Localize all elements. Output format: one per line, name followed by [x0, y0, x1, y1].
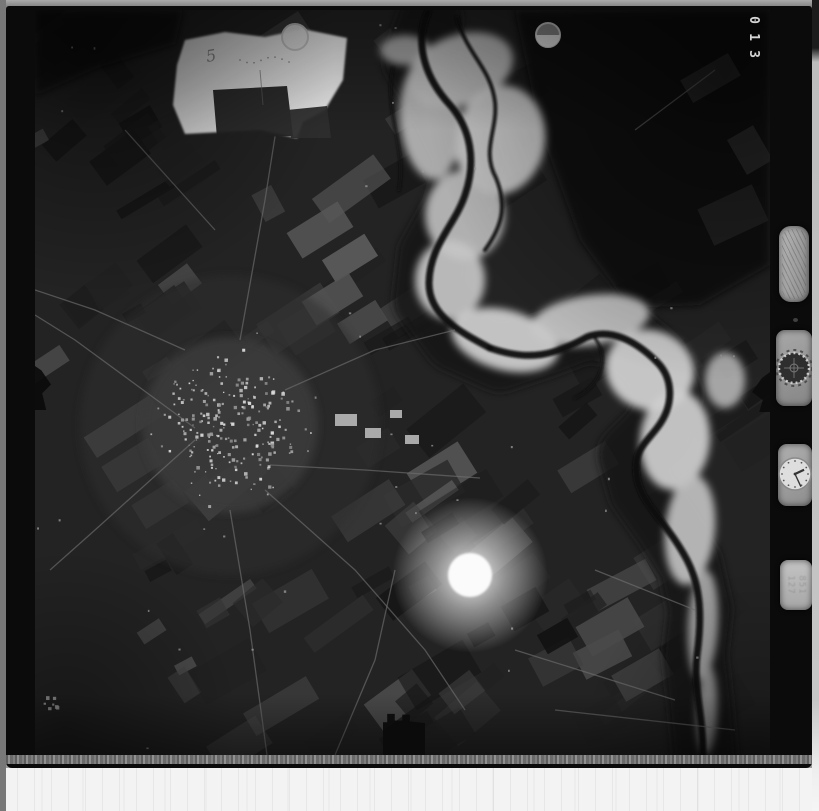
altimeter-scale-marks — [782, 229, 806, 299]
counter-plate: 851 127 — [780, 560, 812, 610]
counter-row-2: 127 — [786, 575, 796, 594]
film-edge-right-margin — [812, 0, 819, 811]
film-edge-transition — [6, 755, 812, 764]
scanner-margin-left — [0, 0, 6, 811]
film-edge-dot — [793, 318, 798, 322]
frame-digit-1: 1 — [746, 28, 760, 46]
level-dial-face — [776, 330, 812, 406]
frame-number: 0 1 3 — [744, 13, 762, 61]
frame-digit-0: 0 — [746, 11, 760, 29]
photo-paper-margin — [0, 768, 819, 811]
frame-digit-2: 3 — [746, 45, 760, 63]
clock-face — [778, 444, 812, 506]
film-frame: 5 0 1 3 — [6, 6, 812, 768]
scanned-aerial-photo-sheet: 5 0 1 3 — [0, 0, 819, 811]
aerial-terrain-rendering: 5 — [35, 10, 770, 755]
counter-digits: 851 127 — [786, 575, 807, 594]
altimeter-dial — [779, 226, 809, 302]
level-indicator-dial — [776, 330, 812, 406]
clock-dial — [778, 444, 812, 506]
aerial-photo-image: 5 0 1 3 — [35, 10, 770, 755]
paper-streaks — [0, 768, 819, 811]
counter-row-1: 851 — [797, 575, 807, 594]
